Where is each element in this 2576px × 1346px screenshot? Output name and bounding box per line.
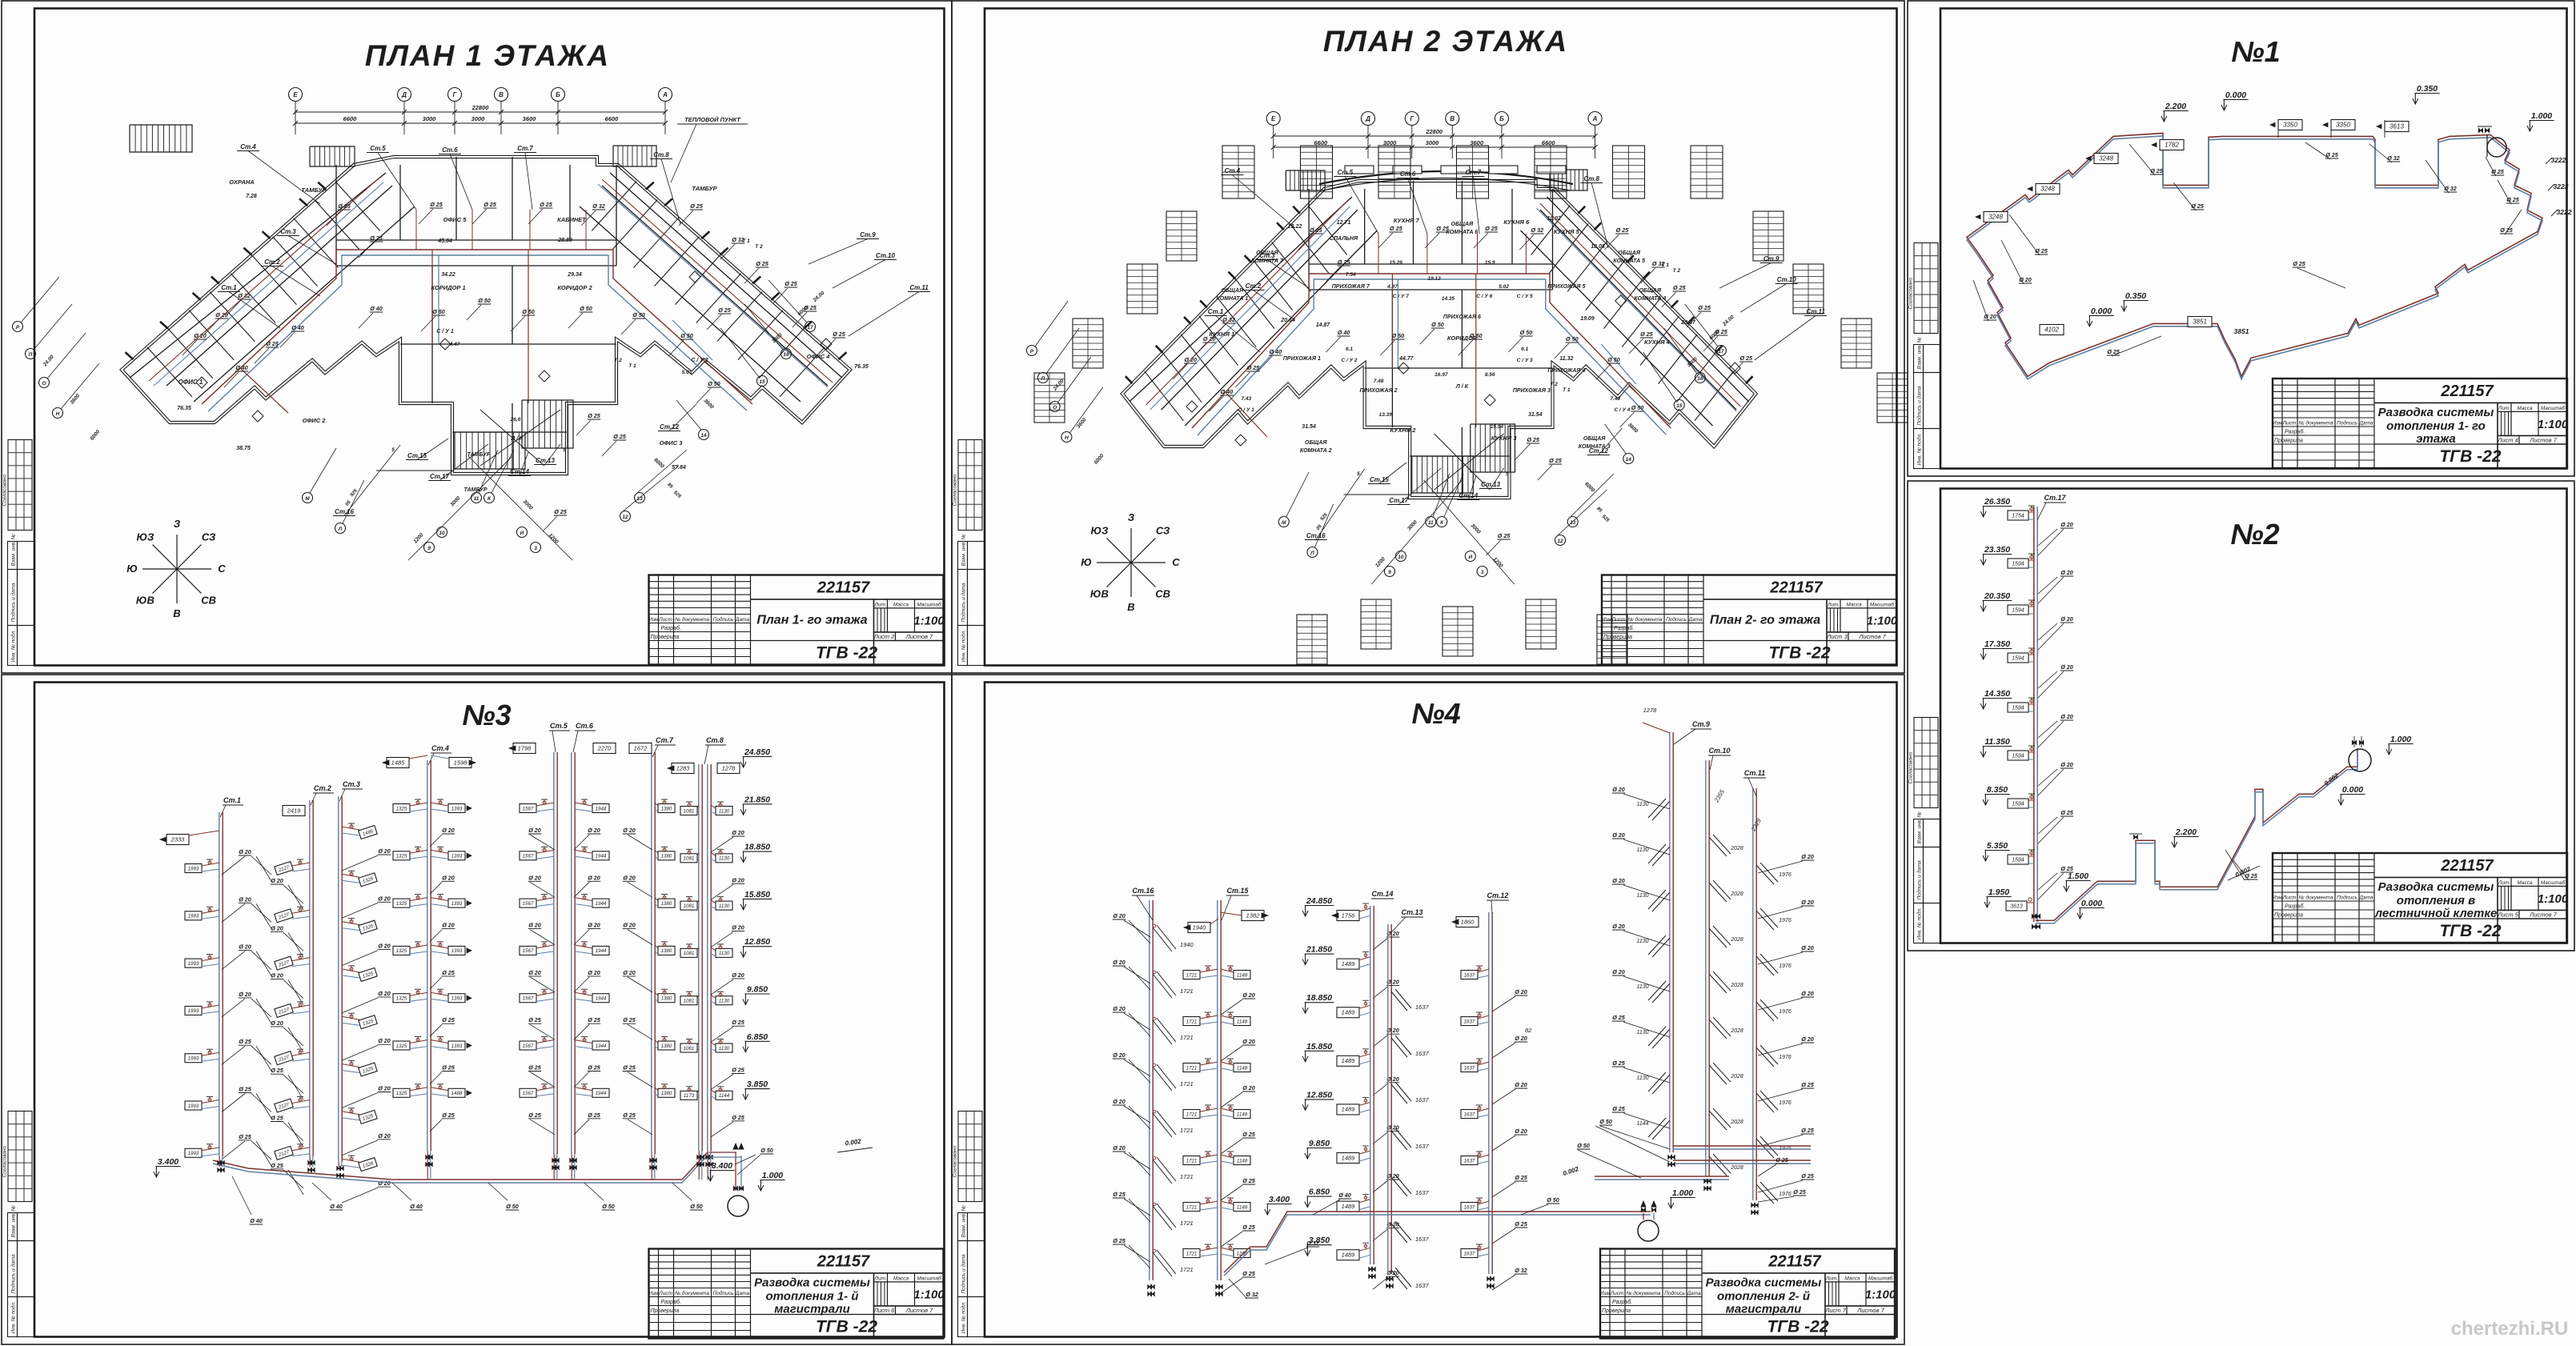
- svg-text:Т 1: Т 1: [628, 363, 636, 369]
- svg-text:Ø 50: Ø 50: [1566, 335, 1579, 343]
- svg-text:1325: 1325: [396, 901, 407, 907]
- svg-text:Разводка системы: Разводка системы: [754, 1276, 870, 1290]
- svg-text:Разводка системы: Разводка системы: [2378, 880, 2494, 894]
- svg-text:Ø 20: Ø 20: [1801, 899, 1814, 906]
- svg-text:20.64: 20.64: [1280, 318, 1295, 323]
- svg-text:Листов 7: Листов 7: [2529, 911, 2557, 919]
- svg-text:Ø 25: Ø 25: [732, 1114, 745, 1121]
- svg-text:1325: 1325: [396, 854, 407, 859]
- svg-text:1567: 1567: [523, 1044, 534, 1049]
- svg-text:Ст.7: Ст.7: [1466, 169, 1482, 176]
- svg-text:Масса: Масса: [2517, 406, 2533, 411]
- svg-text:Ø 25: Ø 25: [1242, 1131, 1256, 1138]
- svg-text:1567: 1567: [523, 901, 534, 907]
- svg-text:1325: 1325: [396, 1091, 407, 1096]
- svg-text:2333: 2333: [171, 835, 186, 843]
- svg-text:Взам. инв. №: Взам. инв. №: [961, 534, 967, 566]
- svg-text:1721: 1721: [1186, 1251, 1198, 1256]
- svg-text:Подпись: Подпись: [713, 616, 734, 623]
- svg-text:Ø 40: Ø 40: [330, 1203, 343, 1210]
- svg-text:Т 1: Т 1: [1563, 387, 1571, 393]
- svg-text:ТАМБУР: ТАМБУР: [692, 185, 717, 192]
- svg-text:Ст.17: Ст.17: [2044, 494, 2067, 502]
- svg-text:П: П: [29, 352, 33, 358]
- svg-text:Ø 25: Ø 25: [1612, 1060, 1626, 1067]
- svg-text:1598: 1598: [454, 759, 468, 766]
- svg-text:Ø 50: Ø 50: [680, 332, 693, 339]
- svg-text:Согласовано: Согласовано: [953, 1145, 958, 1177]
- svg-text:1488: 1488: [451, 1091, 463, 1096]
- svg-text:Ст.2: Ст.2: [314, 784, 331, 792]
- svg-text:Ø 25: Ø 25: [1616, 226, 1630, 234]
- svg-text:Разраб.: Разраб.: [1612, 1299, 1632, 1305]
- svg-text:Ø 50: Ø 50: [478, 297, 491, 304]
- svg-text:Ø 25: Ø 25: [2060, 809, 2074, 816]
- svg-text:Ø 20: Ø 20: [1801, 990, 1814, 997]
- svg-text:Ø 20: Ø 20: [378, 1132, 391, 1140]
- svg-text:И: И: [520, 531, 524, 536]
- svg-text:Ø 25: Ø 25: [239, 1038, 252, 1045]
- svg-text:В: В: [499, 91, 504, 98]
- svg-text:С / У 3: С / У 3: [1517, 358, 1533, 363]
- svg-text:Ст.1: Ст.1: [1208, 308, 1224, 315]
- svg-text:Ø 25: Ø 25: [784, 280, 798, 287]
- svg-text:1130: 1130: [1636, 1076, 1648, 1081]
- svg-text:1944: 1944: [596, 854, 607, 859]
- svg-text:КОРИДОР 2: КОРИДОР 2: [557, 284, 592, 291]
- svg-text:Ø 20: Ø 20: [588, 827, 600, 834]
- svg-text:ОБЩАЯ: ОБЩАЯ: [1451, 222, 1474, 227]
- svg-text:Изм: Изм: [1600, 1291, 1611, 1296]
- svg-text:Ст.6: Ст.6: [576, 722, 594, 730]
- svg-text:Лист: Лист: [658, 617, 672, 623]
- svg-text:3350: 3350: [2336, 121, 2350, 128]
- svg-text:1976: 1976: [1779, 963, 1792, 969]
- svg-text:3600: 3600: [523, 115, 537, 122]
- svg-text:Проверила: Проверила: [651, 1308, 680, 1314]
- svg-text:1637: 1637: [1464, 1251, 1475, 1256]
- svg-text:1798: 1798: [518, 744, 532, 751]
- svg-text:Лист 4: Лист 4: [2497, 437, 2518, 444]
- svg-text:1944: 1944: [596, 1091, 607, 1096]
- svg-text:Ø 20: Ø 20: [623, 827, 636, 834]
- svg-text:6.850: 6.850: [747, 1032, 768, 1042]
- svg-text:Ст.11: Ст.11: [1744, 769, 1765, 777]
- svg-text:Ø 25: Ø 25: [2500, 226, 2514, 234]
- svg-text:1976: 1976: [1779, 872, 1792, 878]
- svg-text:Ст.5: Ст.5: [550, 722, 568, 730]
- svg-text:1489: 1489: [1342, 960, 1356, 967]
- svg-text:1993: 1993: [188, 1151, 199, 1156]
- svg-text:ПРИХОЖАЯ 4: ПРИХОЖАЯ 4: [1547, 368, 1585, 374]
- svg-text:Ø 20: Ø 20: [2060, 615, 2073, 623]
- svg-text:Ø 20: Ø 20: [1242, 991, 1255, 999]
- svg-text:Ø 50: Ø 50: [1599, 1118, 1612, 1125]
- svg-text:Ø 25: Ø 25: [2035, 247, 2048, 254]
- svg-text:Ø 20: Ø 20: [528, 969, 541, 976]
- svg-text:6.1: 6.1: [1521, 347, 1528, 352]
- svg-text:1278: 1278: [1643, 707, 1658, 714]
- svg-text:Ø 25: Ø 25: [528, 1064, 542, 1072]
- svg-text:Ø 50: Ø 50: [432, 308, 445, 315]
- svg-text:Лист 6: Лист 6: [873, 1307, 895, 1314]
- svg-text:1637: 1637: [1464, 1158, 1475, 1164]
- svg-text:О: О: [1053, 405, 1057, 411]
- svg-text:1721: 1721: [1180, 1266, 1194, 1273]
- svg-text:1325: 1325: [396, 1044, 407, 1049]
- svg-text:1489: 1489: [1342, 1203, 1356, 1210]
- svg-text:1940: 1940: [1180, 941, 1194, 948]
- svg-text:Ст.4: Ст.4: [431, 744, 449, 752]
- svg-text:6600: 6600: [605, 115, 620, 122]
- svg-text:Н: Н: [56, 411, 60, 417]
- svg-text:21.850: 21.850: [744, 795, 770, 804]
- svg-text:Ø 40: Ø 40: [1270, 348, 1282, 355]
- svg-text:Дата: Дата: [2358, 895, 2373, 901]
- svg-text:1130: 1130: [1636, 893, 1648, 899]
- svg-text:12: 12: [1557, 539, 1563, 544]
- svg-text:44.77: 44.77: [1398, 356, 1414, 362]
- svg-text:Л / К: Л / К: [511, 436, 524, 442]
- svg-text:Ø 25: Ø 25: [1113, 1191, 1126, 1198]
- svg-text:Ø 25: Ø 25: [271, 1162, 284, 1169]
- svg-text:Ø 25: Ø 25: [1338, 258, 1351, 266]
- svg-text:СВ: СВ: [201, 595, 216, 607]
- svg-text:0.000: 0.000: [2225, 90, 2246, 100]
- svg-text:16: 16: [783, 352, 789, 358]
- svg-text:1594: 1594: [2012, 561, 2024, 567]
- svg-text:Взам. инв. №: Взам. инв. №: [11, 1205, 17, 1237]
- svg-text:1:100: 1:100: [1867, 615, 1898, 628]
- svg-text:14.35: 14.35: [1442, 296, 1455, 302]
- svg-text:1944: 1944: [596, 948, 607, 954]
- svg-text:СВ: СВ: [1155, 588, 1170, 600]
- svg-text:22800: 22800: [1425, 128, 1443, 135]
- svg-text:1754: 1754: [2012, 513, 2024, 519]
- svg-text:Листов 7: Листов 7: [1856, 1307, 1884, 1314]
- svg-text:Инв. № подл.: Инв. № подл.: [961, 1301, 967, 1334]
- svg-text:Ø 50: Ø 50: [690, 1203, 703, 1210]
- svg-text:14: 14: [1626, 457, 1632, 463]
- svg-text:Ø 25: Ø 25: [1515, 1174, 1528, 1181]
- svg-text:А: А: [662, 91, 668, 98]
- svg-text:КУХНЯ 4: КУХНЯ 4: [1644, 339, 1671, 346]
- svg-text:ТАМБУР: ТАМБУР: [463, 487, 487, 493]
- svg-text:8.350: 8.350: [1987, 785, 2008, 795]
- svg-text:Ø 20: Ø 20: [623, 969, 636, 976]
- svg-text:№ документа: № документа: [675, 616, 709, 623]
- svg-text:Ø 20: Ø 20: [1386, 979, 1399, 986]
- svg-text:1.500: 1.500: [2068, 871, 2088, 881]
- svg-text:1380: 1380: [661, 1091, 672, 1096]
- svg-text:Ст.6: Ст.6: [442, 146, 458, 154]
- svg-text:Ø 25: Ø 25: [554, 508, 568, 515]
- svg-text:Ø 50: Ø 50: [1431, 321, 1444, 328]
- svg-text:Ø 20: Ø 20: [378, 990, 391, 997]
- svg-text:Масштаб: Масштаб: [2541, 879, 2566, 886]
- svg-text:1637: 1637: [1464, 1065, 1475, 1071]
- svg-text:Ст.1: Ст.1: [221, 284, 237, 291]
- svg-text:0.000: 0.000: [2091, 306, 2112, 316]
- svg-text:8.56: 8.56: [1485, 372, 1495, 378]
- svg-text:Изм: Изм: [2273, 421, 2283, 427]
- svg-text:12.850: 12.850: [1306, 1090, 1332, 1100]
- svg-text:этажа: этажа: [2416, 432, 2456, 446]
- svg-text:Ø 25: Ø 25: [1739, 355, 1753, 362]
- svg-text:31.54: 31.54: [1528, 412, 1543, 418]
- svg-text:Инв. № подл.: Инв. № подл.: [10, 1301, 17, 1334]
- svg-text:Подпись и дата: Подпись и дата: [1916, 860, 1923, 900]
- svg-text:Ст.13: Ст.13: [1402, 908, 1423, 916]
- svg-text:КУХНЯ 1: КУХНЯ 1: [1209, 330, 1234, 338]
- svg-text:Лист 7: Лист 7: [1824, 1307, 1846, 1314]
- svg-text:Дата: Дата: [2358, 421, 2373, 427]
- svg-text:Ст.10: Ст.10: [1709, 747, 1731, 755]
- svg-text:1130: 1130: [1636, 802, 1648, 807]
- svg-text:3248: 3248: [2099, 154, 2113, 162]
- svg-text:Ø 20: Ø 20: [2060, 663, 2073, 671]
- svg-text:Ø 25: Ø 25: [1801, 1081, 1815, 1088]
- svg-text:1721: 1721: [1180, 1173, 1194, 1180]
- svg-text:Ø 25: Ø 25: [528, 1112, 542, 1119]
- svg-text:Разраб.: Разраб.: [661, 1299, 681, 1305]
- svg-text:Ст.8: Ст.8: [653, 151, 669, 158]
- svg-text:Л / К: Л / К: [1455, 384, 1469, 390]
- svg-text:Взам. инв. №: Взам. инв. №: [1917, 811, 1923, 843]
- svg-text:Ø 25: Ø 25: [2150, 167, 2164, 174]
- svg-text:№ документа: № документа: [1628, 616, 1663, 623]
- svg-text:отопления 1- й: отопления 1- й: [766, 1290, 859, 1304]
- svg-text:Ø 20: Ø 20: [1113, 1144, 1125, 1152]
- svg-text:С: С: [1172, 556, 1180, 568]
- svg-text:Лит.: Лит.: [873, 602, 886, 607]
- svg-text:1637: 1637: [1464, 1204, 1475, 1210]
- svg-text:Ø 25: Ø 25: [1527, 436, 1540, 443]
- svg-text:Ø 20: Ø 20: [732, 829, 744, 836]
- svg-text:6.1: 6.1: [1346, 347, 1353, 352]
- svg-text:1393: 1393: [451, 996, 463, 1002]
- svg-text:КУХНЯ 5: КУХНЯ 5: [1554, 228, 1580, 235]
- svg-text:13: 13: [636, 496, 643, 502]
- svg-text:221157: 221157: [1769, 579, 1823, 597]
- svg-text:3222: 3222: [2554, 182, 2569, 190]
- svg-text:12.71: 12.71: [1337, 220, 1351, 226]
- svg-text:Масштаб: Масштаб: [917, 601, 941, 607]
- svg-text:11.350: 11.350: [1984, 737, 2009, 747]
- svg-text:Ø 50: Ø 50: [1577, 1142, 1590, 1149]
- svg-text:Ø 25: Ø 25: [1247, 364, 1261, 371]
- svg-text:2028: 2028: [1730, 1028, 1743, 1034]
- svg-text:Ø 25: Ø 25: [588, 1016, 601, 1024]
- svg-text:1325: 1325: [396, 806, 407, 811]
- svg-text:10.02: 10.02: [1547, 216, 1561, 222]
- svg-text:Ст.15: Ст.15: [1370, 476, 1389, 483]
- svg-text:1081: 1081: [684, 1046, 695, 1052]
- svg-text:Ø 20: Ø 20: [2060, 761, 2073, 768]
- svg-text:3.400: 3.400: [158, 1157, 179, 1167]
- svg-text:221157: 221157: [2440, 857, 2494, 875]
- svg-text:Масштаб: Масштаб: [1870, 601, 1895, 607]
- svg-text:Р: Р: [16, 325, 20, 330]
- svg-text:1148: 1148: [1237, 1065, 1248, 1071]
- svg-text:ПРИХОЖАЯ 1: ПРИХОЖАЯ 1: [1283, 356, 1321, 362]
- svg-text:Изм: Изм: [648, 1291, 659, 1296]
- svg-text:5.350: 5.350: [1987, 841, 2008, 851]
- svg-text:Масса: Масса: [2517, 880, 2533, 886]
- svg-text:Ø 20: Ø 20: [1113, 912, 1125, 919]
- svg-text:Ø 25: Ø 25: [528, 1016, 542, 1024]
- svg-text:М: М: [1282, 520, 1286, 526]
- svg-text:Ø 20: Ø 20: [442, 827, 455, 834]
- svg-text:ОБЩАЯ: ОБЩАЯ: [1583, 436, 1606, 442]
- svg-text:Лит.: Лит.: [1825, 1276, 1838, 1281]
- svg-text:ПРИХОЖАЯ 2: ПРИХОЖАЯ 2: [1360, 388, 1398, 394]
- svg-text:2.200: 2.200: [2175, 827, 2197, 837]
- svg-text:1130: 1130: [719, 808, 730, 814]
- svg-text:3: 3: [1481, 570, 1484, 575]
- svg-text:7.54: 7.54: [1346, 272, 1356, 278]
- svg-text:1721: 1721: [1180, 1127, 1194, 1134]
- svg-text:КУХНЯ 7: КУХНЯ 7: [1394, 217, 1420, 224]
- svg-text:1637: 1637: [1464, 1019, 1475, 1024]
- svg-text:1489: 1489: [1342, 1009, 1356, 1016]
- svg-text:Дата: Дата: [1686, 1291, 1701, 1296]
- svg-text:Т 2: Т 2: [755, 244, 763, 250]
- svg-text:1.000: 1.000: [1672, 1188, 1693, 1198]
- svg-text:1594: 1594: [2012, 753, 2024, 759]
- svg-text:КОМНАТА 6: КОМНАТА 6: [1446, 230, 1479, 235]
- svg-text:ТГВ -22: ТГВ -22: [1767, 1318, 1828, 1336]
- svg-text:Ø 20: Ø 20: [378, 943, 391, 950]
- svg-text:Ø 20: Ø 20: [1612, 923, 1625, 930]
- svg-text:17.350: 17.350: [1984, 639, 2010, 649]
- svg-text:16.97: 16.97: [1434, 372, 1448, 378]
- svg-text:Ø 20: Ø 20: [1515, 1035, 1527, 1042]
- svg-text:29.34: 29.34: [567, 272, 582, 278]
- svg-text:Подпись и дата: Подпись и дата: [961, 583, 967, 623]
- svg-text:Е: Е: [1271, 115, 1276, 122]
- svg-text:Ст.11: Ст.11: [909, 284, 929, 291]
- svg-text:7.48: 7.48: [1374, 379, 1384, 384]
- svg-text:Масштаб: Масштаб: [917, 1275, 941, 1281]
- svg-text:Е: Е: [293, 91, 298, 98]
- svg-text:КОМНАТА 7: КОМНАТА 7: [1251, 258, 1284, 264]
- svg-text:Ø 25: Ø 25: [484, 201, 497, 208]
- svg-text:23.22: 23.22: [1287, 224, 1302, 230]
- svg-text:Ø 25: Ø 25: [239, 1133, 252, 1140]
- svg-text:Масштаб: Масштаб: [2541, 405, 2566, 411]
- svg-text:Ø 25: Ø 25: [1390, 225, 1403, 232]
- svg-text:3350: 3350: [2283, 121, 2297, 128]
- svg-text:15.9: 15.9: [1485, 260, 1495, 266]
- svg-text:Ø 20: Ø 20: [1113, 1005, 1125, 1012]
- svg-text:Ø 25: Ø 25: [1310, 226, 1323, 234]
- svg-text:Ø 50: Ø 50: [522, 308, 535, 315]
- svg-text:1993: 1993: [188, 1056, 199, 1062]
- svg-text:Ø 40: Ø 40: [1338, 329, 1350, 336]
- svg-text:Лит.: Лит.: [873, 1276, 886, 1281]
- svg-text:1637: 1637: [1415, 1096, 1430, 1104]
- svg-text:17: 17: [1718, 349, 1724, 355]
- svg-text:1380: 1380: [661, 854, 672, 859]
- svg-text:1393: 1393: [451, 806, 463, 811]
- svg-text:Р: Р: [1030, 349, 1034, 355]
- svg-text:11.32: 11.32: [1559, 356, 1573, 362]
- svg-text:Ø 20: Ø 20: [1386, 1076, 1399, 1083]
- svg-text:9.850: 9.850: [747, 985, 768, 995]
- svg-text:2028: 2028: [1730, 1165, 1743, 1171]
- svg-text:6600: 6600: [343, 115, 358, 122]
- svg-text:Л: Л: [338, 527, 343, 532]
- svg-text:Лист 3: Лист 3: [1826, 633, 1848, 640]
- svg-text:1976: 1976: [1779, 1009, 1792, 1015]
- svg-text:23.350: 23.350: [1984, 545, 2010, 555]
- svg-text:Взам. инв. №: Взам. инв. №: [1917, 337, 1923, 369]
- svg-text:С / У 1: С / У 1: [436, 329, 454, 334]
- svg-text:Лист: Лист: [2282, 895, 2297, 901]
- svg-text:П: П: [1041, 376, 1045, 382]
- svg-text:1944: 1944: [596, 901, 607, 907]
- svg-text:26,6: 26,6: [510, 417, 521, 423]
- svg-text:1567: 1567: [523, 996, 534, 1002]
- svg-text:15.94: 15.94: [1491, 424, 1504, 430]
- svg-text:221157: 221157: [817, 579, 870, 597]
- svg-text:КУХНЯ 2: КУХНЯ 2: [1390, 427, 1417, 434]
- svg-text:1993: 1993: [188, 866, 199, 871]
- svg-text:Подпись: Подпись: [2337, 420, 2357, 427]
- svg-text:Ø 32: Ø 32: [1246, 1291, 1258, 1298]
- svg-text:Ю: Ю: [126, 563, 138, 575]
- svg-text:Ø 20: Ø 20: [239, 943, 251, 951]
- svg-text:3851: 3851: [2234, 327, 2249, 335]
- svg-text:№3: №3: [462, 699, 511, 731]
- svg-text:57.84: 57.84: [672, 465, 686, 471]
- svg-text:Ø 25: Ø 25: [442, 969, 455, 976]
- svg-text:Ø 25: Ø 25: [370, 234, 383, 242]
- svg-text:отопления 2- й: отопления 2- й: [1717, 1290, 1810, 1304]
- svg-text:1756: 1756: [1342, 911, 1356, 919]
- svg-text:Проверила: Проверила: [651, 635, 680, 640]
- svg-text:Ø 20: Ø 20: [215, 311, 228, 318]
- svg-text:КОМНАТА 1: КОМНАТА 1: [1217, 296, 1249, 302]
- svg-text:Ø 32: Ø 32: [1652, 260, 1665, 267]
- svg-text:1130: 1130: [719, 999, 730, 1004]
- svg-text:1130: 1130: [1636, 939, 1648, 944]
- svg-text:СЗ: СЗ: [1156, 524, 1170, 536]
- svg-text:ТГВ -22: ТГВ -22: [1768, 644, 1830, 663]
- svg-text:19.09: 19.09: [1580, 316, 1595, 322]
- svg-text:Ст.8: Ст.8: [706, 736, 724, 744]
- svg-text:15.850: 15.850: [1306, 1042, 1332, 1052]
- svg-text:Ø 20: Ø 20: [528, 827, 541, 834]
- svg-text:3000: 3000: [423, 115, 437, 122]
- svg-text:ТГВ -22: ТГВ -22: [2439, 922, 2501, 940]
- svg-text:План 2- го этажа: План 2- го этажа: [1710, 614, 1820, 627]
- svg-text:Ø 50: Ø 50: [1631, 404, 1644, 411]
- svg-text:1860: 1860: [1461, 918, 1475, 925]
- svg-text:2419: 2419: [287, 807, 302, 814]
- svg-text:2.200: 2.200: [2165, 102, 2186, 111]
- svg-text:Ø 50: Ø 50: [632, 311, 645, 318]
- svg-text:ОФИС 5: ОФИС 5: [443, 216, 467, 223]
- svg-text:Ø 25: Ø 25: [239, 1086, 252, 1093]
- svg-text:3613: 3613: [2389, 122, 2404, 130]
- svg-text:1393: 1393: [451, 1044, 463, 1049]
- svg-text:Ø 20: Ø 20: [1386, 1027, 1399, 1034]
- svg-text:З: З: [174, 518, 181, 530]
- svg-text:Лист 5: Лист 5: [2497, 911, 2518, 919]
- svg-text:ЮЗ: ЮЗ: [136, 531, 154, 543]
